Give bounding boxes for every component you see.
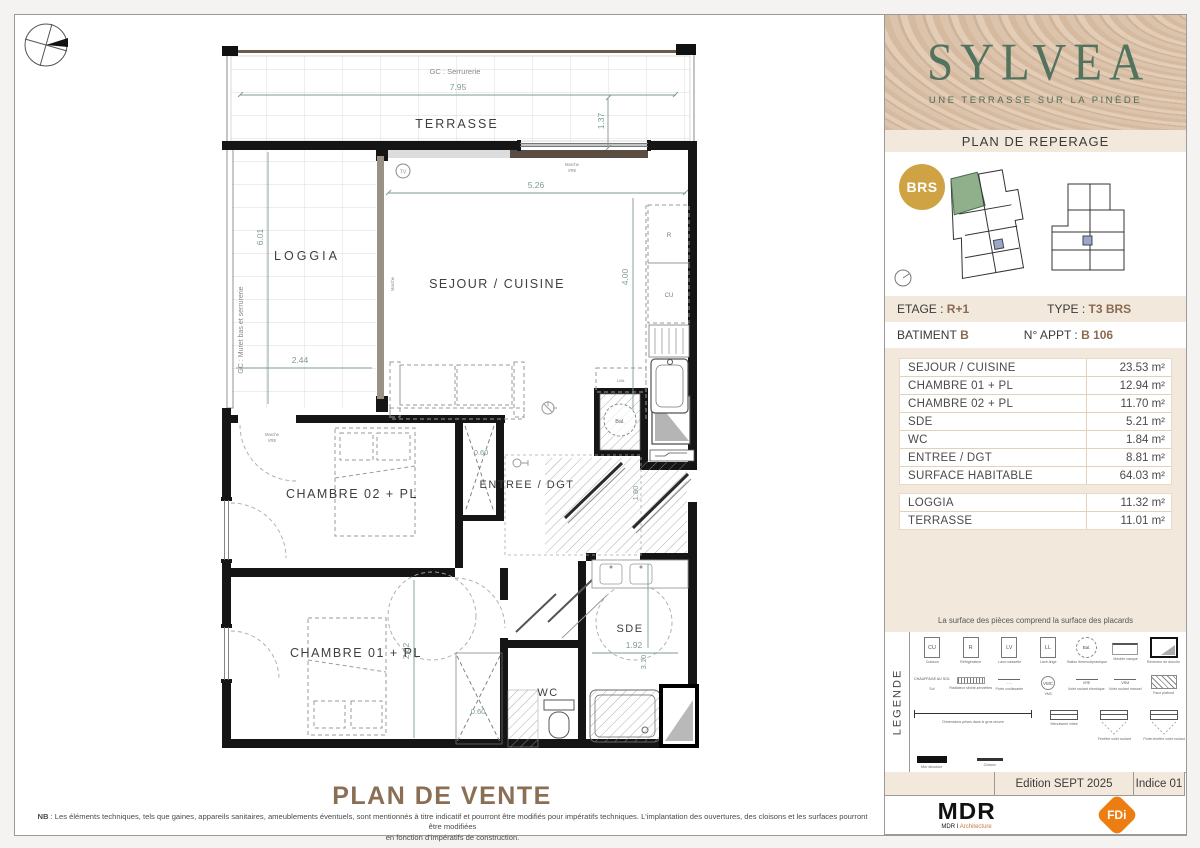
brand-header: SYLVEA UNE TERRASSE SUR LA PINÈDE	[884, 14, 1187, 132]
building-a-outline	[1052, 184, 1124, 270]
room-label-chambre01: CHAMBRE 01 + PL	[290, 646, 422, 660]
brand-logo: SYLVEA	[927, 37, 1150, 90]
table-row: LOGGIA 11.32 m²	[900, 494, 1171, 512]
bal-label: Bal.	[615, 419, 625, 425]
keyplan-panel: BRS	[884, 152, 1187, 297]
etage-value: R+1	[947, 302, 969, 316]
svg-text:R: R	[667, 233, 672, 239]
mdr-logo: MDR MDR I Architecture	[939, 800, 994, 830]
svg-text:1.92: 1.92	[626, 640, 643, 650]
legend-item: Porte-fenêtre volet roulant	[1146, 706, 1182, 742]
hatch-swatch	[1151, 675, 1177, 689]
table-row: TERRASSE 11.01 m²	[900, 512, 1171, 529]
svg-text:LML: LML	[617, 378, 626, 383]
table-row: ENTREE / DGT 8.81 m²	[900, 449, 1171, 467]
batiment-label: BATIMENT	[885, 328, 957, 342]
table-row: SDE 5.21 m²	[900, 413, 1171, 431]
tv-icon: TV	[400, 170, 407, 176]
svg-text:7.95: 7.95	[450, 82, 467, 92]
legend-item: Menuiserie vitrée	[1046, 706, 1082, 727]
appt-value: B 106	[1081, 328, 1113, 342]
step-band	[386, 150, 510, 158]
areas-panel: SEJOUR / CUISINE 23.53 m² CHAMBRE 01 + P…	[884, 348, 1187, 633]
svg-text:CU: CU	[665, 293, 674, 299]
window-icon	[1150, 710, 1178, 720]
legend-item: VRM Volet roulant manuel	[1107, 673, 1143, 692]
legend-item: Mur structure	[914, 750, 950, 770]
legend-item: VRE Volet roulant électrique	[1069, 673, 1105, 692]
kitchen-fixtures	[649, 325, 689, 413]
room-label-wc: WC	[537, 687, 558, 699]
appt-label: N° APPT :	[1024, 328, 1078, 342]
edition-date: Edition SEPT 2025	[994, 772, 1134, 796]
loggia-glazing	[377, 156, 384, 399]
edition-empty-cell	[884, 772, 994, 796]
svg-text:VRE: VRE	[268, 438, 277, 443]
table-row-total: SURFACE HABITABLE 64.03 m²	[900, 467, 1171, 484]
annexes-table: LOGGIA 11.32 m² TERRASSE 11.01 m²	[899, 493, 1172, 530]
svg-text:Marche: Marche	[265, 432, 280, 437]
type-label: TYPE :	[1047, 302, 1085, 316]
floor-plan: TV 7.95 1.37 6.01 2.44 5.26 4.00 0.60 2.…	[0, 0, 884, 780]
legend-panel: LEGENDE CU Cuisson R Réfrigérateur LV La…	[884, 632, 1187, 773]
north-compass-icon	[25, 24, 68, 66]
svg-text:1.37: 1.37	[596, 112, 606, 129]
vasque-icon	[1112, 643, 1138, 655]
legend-title: LEGENDE	[891, 669, 903, 736]
svg-text:Marche: Marche	[565, 162, 580, 167]
legend-row-4: Mur structure Cloison	[914, 750, 1182, 770]
room-label-loggia: LOGGIA	[274, 249, 340, 263]
shower-icon	[1150, 637, 1178, 658]
room-label-terrasse: TERRASSE	[415, 117, 498, 131]
legend-item: Bal. Ballon thermodynamique	[1069, 637, 1105, 665]
table-row: WC 1.84 m²	[900, 431, 1171, 449]
type-value: T3 BRS	[1089, 302, 1132, 316]
legend-item: CHAUFFAGE AU SOL Sol	[914, 673, 950, 692]
svg-text:4.00: 4.00	[620, 268, 630, 285]
legend-item: R Réfrigérateur	[953, 637, 989, 665]
legend-item: Faux plafond	[1146, 673, 1182, 696]
legend-row-3: Dimensions prises dans le gros œuvre Men…	[914, 706, 1182, 742]
gc-serrurerie-note: GC : Serrurerie	[430, 67, 481, 76]
table-row: CHAMBRE 01 + PL 12.94 m²	[900, 377, 1171, 395]
brand-tagline: UNE TERRASSE SUR LA PINÈDE	[929, 95, 1142, 106]
svg-text:5.26: 5.26	[528, 180, 545, 190]
svg-text:2.44: 2.44	[292, 355, 309, 365]
room-label-chambre02: CHAMBRE 02 + PL	[286, 487, 418, 501]
partition-icon	[977, 758, 1003, 761]
swing-icon	[1101, 721, 1127, 735]
legend-item: VMC VMC	[1030, 673, 1066, 697]
batiment-row: BATIMENT B N° APPT : B 106	[884, 322, 1187, 349]
etage-label: ETAGE :	[885, 302, 943, 316]
page-title: PLAN DE VENTE	[0, 782, 884, 811]
swing-icon	[1151, 721, 1177, 735]
batiment-value: B	[960, 328, 969, 342]
legend-item: LL Lave-linge	[1030, 637, 1066, 665]
svg-text:Marche: Marche	[390, 276, 395, 291]
room-label-sde: SDE	[616, 623, 643, 635]
wall-icon	[917, 756, 947, 763]
svg-text:3.10: 3.10	[639, 655, 648, 670]
fdi-logo: FDi	[1096, 794, 1138, 836]
legend-item: Dimensions prises dans le gros œuvre	[914, 706, 1032, 725]
reperage-title: PLAN DE REPERAGE	[884, 130, 1187, 153]
surface-note: La surface des pièces comprend la surfac…	[885, 616, 1186, 625]
legend-item: LV Lave-vaisselle	[991, 637, 1027, 665]
building-b-outline	[943, 166, 1032, 279]
edition-row: Edition SEPT 2025 Indice 01	[884, 772, 1185, 796]
svg-text:VRE: VRE	[568, 168, 577, 173]
window-icon	[1100, 710, 1128, 720]
legend-item: - - - Porte coulissante	[991, 673, 1027, 692]
edition-indice: Indice 01	[1134, 772, 1185, 796]
legend-item: Cloison	[972, 750, 1008, 768]
loggia	[227, 146, 376, 408]
legend-item: Receveur de douche	[1146, 637, 1182, 665]
keyplan-compass-icon	[895, 270, 911, 286]
table-row: CHAMBRE 02 + PL 11.70 m²	[900, 395, 1171, 413]
legend-item: Meuble vasque	[1107, 637, 1143, 662]
etage-row: ETAGE : R+1 TYPE : T3 BRS	[884, 296, 1187, 323]
legend-body: CU Cuisson R Réfrigérateur LV Lave-vaiss…	[910, 632, 1186, 772]
legend-item: Fenêtre volet roulant	[1096, 706, 1132, 742]
areas-table: SEJOUR / CUISINE 23.53 m² CHAMBRE 01 + P…	[899, 358, 1172, 485]
nb-footnote: NB : Les éléments techniques, tels que g…	[30, 812, 875, 843]
logos-row: MDR MDR I Architecture FDi	[884, 796, 1187, 835]
svg-text:0.60: 0.60	[474, 448, 489, 457]
radiator-icon	[957, 677, 985, 684]
slider-frame	[510, 150, 648, 158]
legend-row-2: CHAUFFAGE AU SOL Sol Radiateur sèche-ser…	[914, 673, 1182, 697]
gc-muret-note: GC : Muret bas et serrurerie	[238, 286, 245, 373]
keyplan-map	[885, 152, 1186, 296]
room-label-entree: ENTREE / DGT	[479, 479, 574, 491]
svg-text:6.01: 6.01	[255, 228, 265, 245]
legend-item: CU Cuisson	[914, 637, 950, 665]
legend-row-1: CU Cuisson R Réfrigérateur LV Lave-vaiss…	[914, 637, 1182, 665]
legend-item: Radiateur sèche-serviettes	[953, 673, 989, 691]
table-row: SEJOUR / CUISINE 23.53 m²	[900, 359, 1171, 377]
svg-text:1.80: 1.80	[631, 486, 640, 501]
room-label-sejour: SEJOUR / CUISINE	[429, 277, 565, 291]
window-icon	[1050, 710, 1078, 720]
legend-title-strip: LEGENDE	[885, 632, 910, 772]
dimension-line-icon	[914, 710, 1032, 718]
svg-text:0.60: 0.60	[471, 707, 486, 716]
